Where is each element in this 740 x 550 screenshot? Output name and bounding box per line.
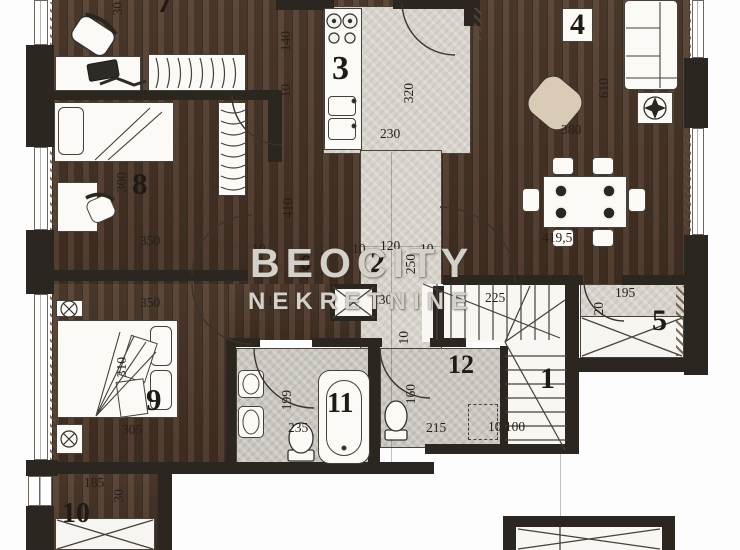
- dimension-label: 30: [112, 489, 126, 503]
- dimension-label: 350: [140, 296, 160, 310]
- dimension-label: 230: [380, 127, 400, 141]
- office-chair-room7: [69, 10, 120, 59]
- x-balcony5: [582, 318, 682, 356]
- dimension-label: 199: [280, 390, 294, 410]
- dimension-label: 185: [84, 476, 104, 490]
- dimension-label: 215: [426, 421, 446, 435]
- dimension-label: 320: [402, 83, 416, 103]
- dimension-label: 10: [279, 84, 293, 98]
- sofa-cushion-lines: [626, 2, 678, 88]
- x-braces: [57, 287, 682, 550]
- door-arc-room7: [232, 95, 282, 145]
- door-arcs: [192, 2, 624, 408]
- lamp-icons: [61, 301, 77, 447]
- desk-items-room7: [87, 60, 146, 85]
- toilet-wc12: [385, 401, 407, 440]
- dimension-label: 160: [404, 384, 418, 404]
- dimension-label: 195: [615, 286, 635, 300]
- room-label-10: 10: [62, 500, 90, 528]
- dimension-label: 30: [111, 2, 125, 16]
- dimension-label: 310: [115, 357, 129, 377]
- dimension-label: 350: [140, 234, 160, 248]
- room-label-8: 8: [132, 168, 148, 199]
- door-arc-kitchen: [402, 2, 455, 55]
- dimension-label: 300: [115, 172, 129, 192]
- room-label-12: 12: [448, 352, 474, 378]
- dimension-label: 235: [288, 421, 308, 435]
- door-arc-room8: [192, 215, 252, 275]
- dimension-label: 610: [597, 78, 611, 98]
- dimension-label: 305: [122, 423, 142, 437]
- room-label-9: 9: [146, 384, 162, 415]
- chair-back-room8: [86, 194, 114, 200]
- watermark-line2: NEKRETNINE: [248, 288, 474, 316]
- dimension-label: 10: [397, 331, 411, 345]
- room-label-5: 5: [652, 306, 667, 336]
- table-knobs: [555, 185, 615, 219]
- dimension-label: 140: [279, 31, 293, 51]
- dimension-label: 410: [281, 198, 295, 218]
- dimension-label: 380: [561, 123, 581, 137]
- door-arc-room9: [192, 284, 252, 344]
- room-label-7: 7: [156, 0, 174, 18]
- bed-blanket-lines: [95, 108, 162, 416]
- hanger-rails: [156, 58, 245, 190]
- room-label-11: 11: [327, 390, 353, 418]
- dimension-label: 225: [485, 291, 505, 305]
- stove-burners: [327, 14, 357, 43]
- dimension-label: 10 100: [488, 420, 525, 434]
- room-label-4: 4: [562, 8, 593, 42]
- compass-icon: [644, 97, 666, 119]
- floor-plan-canvas: BEOCITY NEKRETNINE 734862911121510301401…: [0, 0, 740, 550]
- room-label-1: 1: [540, 364, 555, 394]
- x-balcony-br: [518, 527, 660, 550]
- watermark-line1: BEOCITY: [250, 240, 474, 287]
- dimension-label: 20: [592, 302, 606, 316]
- room-label-3: 3: [332, 52, 349, 86]
- dimension-label: 419,5: [542, 231, 572, 245]
